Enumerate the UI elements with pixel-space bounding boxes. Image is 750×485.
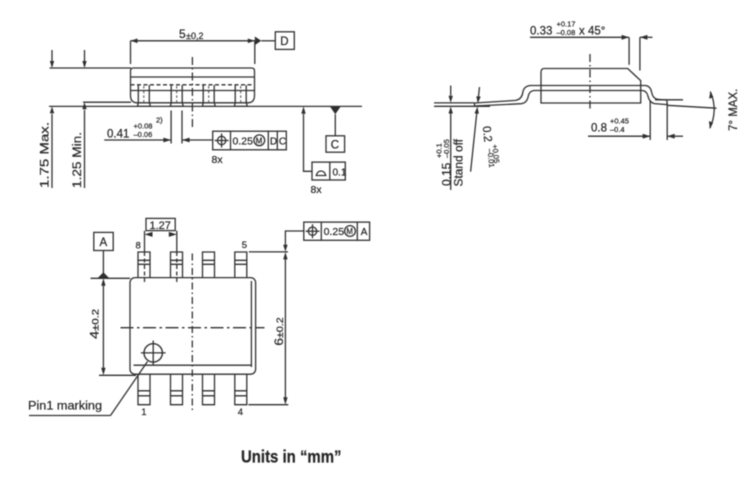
svg-text:D: D — [270, 136, 277, 147]
svg-text:x 45°: x 45° — [579, 26, 605, 38]
svg-text:5: 5 — [242, 240, 247, 251]
svg-text:1.75 Max.: 1.75 Max. — [38, 122, 52, 188]
svg-text:0.1: 0.1 — [333, 168, 347, 179]
svg-text:C: C — [279, 136, 286, 147]
svg-text:–0.01: –0.01 — [485, 148, 496, 168]
svg-text:–0.05: –0.05 — [442, 139, 451, 158]
svg-text:M: M — [346, 227, 353, 236]
svg-text:±0,2: ±0,2 — [186, 31, 203, 41]
svg-text:Units in “mm”: Units in “mm” — [241, 447, 342, 467]
svg-text:–0.06: –0.06 — [134, 130, 153, 139]
svg-text:0.8: 0.8 — [591, 123, 607, 135]
svg-text:5: 5 — [179, 27, 186, 41]
svg-text:6±0.2: 6±0.2 — [274, 317, 286, 346]
svg-text:2): 2) — [156, 116, 163, 125]
svg-text:8x: 8x — [212, 154, 224, 166]
svg-text:C: C — [331, 140, 339, 152]
svg-text:0.33: 0.33 — [530, 26, 552, 38]
svg-text:8: 8 — [136, 240, 141, 251]
svg-text:Stand off: Stand off — [453, 138, 465, 186]
svg-text:A: A — [361, 227, 368, 238]
svg-text:Pin1 marking: Pin1 marking — [28, 398, 102, 412]
svg-text:–0.08: –0.08 — [557, 28, 576, 37]
svg-text:1: 1 — [141, 407, 146, 418]
svg-text:7° MAX.: 7° MAX. — [728, 89, 740, 131]
svg-text:4: 4 — [238, 407, 243, 418]
svg-text:4±0.2: 4±0.2 — [90, 309, 102, 339]
svg-text:0.25: 0.25 — [324, 226, 345, 238]
svg-text:0.25: 0.25 — [233, 135, 254, 147]
svg-text:1.27: 1.27 — [150, 220, 171, 232]
svg-text:A: A — [100, 237, 108, 249]
svg-text:M: M — [256, 136, 263, 145]
svg-text:D: D — [280, 36, 288, 48]
svg-text:0.2: 0.2 — [480, 126, 494, 143]
svg-text:1.25 Min.: 1.25 Min. — [70, 132, 84, 188]
svg-text:8x: 8x — [311, 184, 323, 196]
svg-text:–0.4: –0.4 — [610, 125, 625, 134]
svg-text:0.15: 0.15 — [440, 162, 454, 186]
svg-text:0.41: 0.41 — [107, 129, 129, 141]
